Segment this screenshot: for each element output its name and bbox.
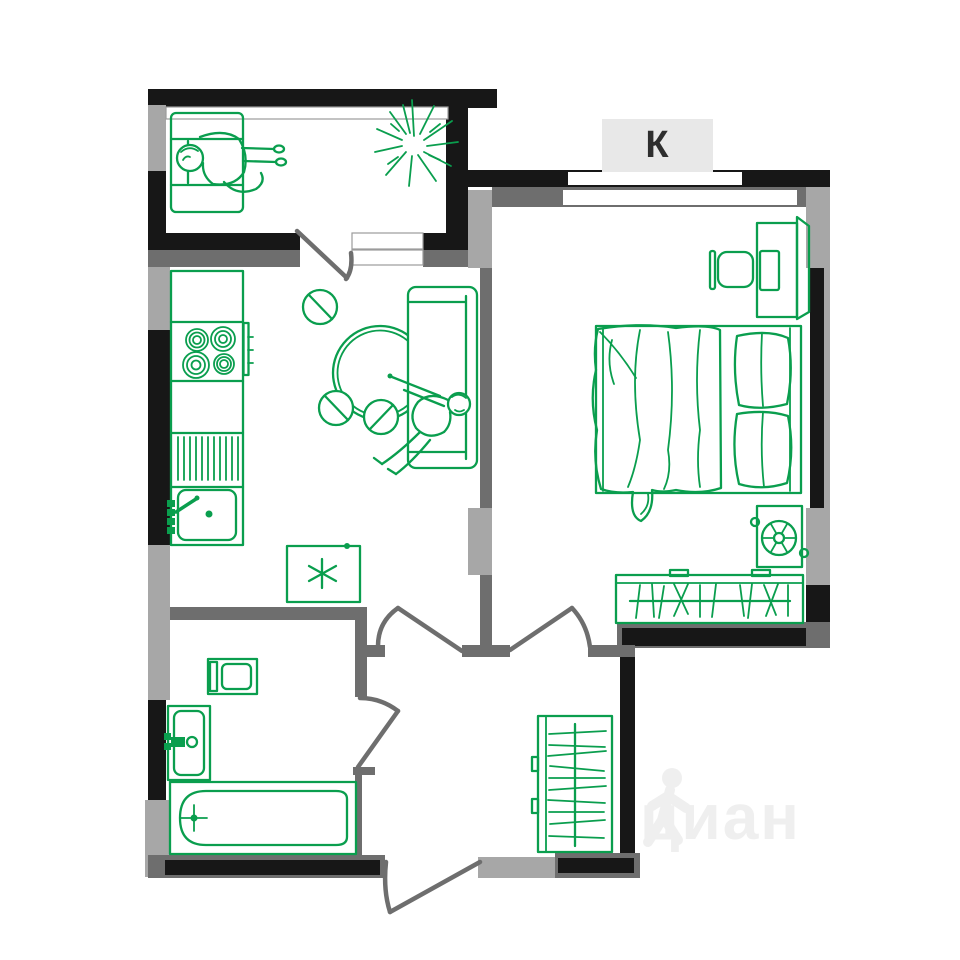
window — [352, 233, 423, 249]
wall — [148, 545, 170, 607]
wall — [355, 607, 367, 697]
wall — [148, 105, 166, 171]
monitor-icon — [760, 251, 779, 290]
window — [563, 190, 797, 205]
window — [352, 250, 423, 265]
floor-plan: К циан — [0, 0, 960, 960]
wall — [148, 607, 363, 620]
wall — [148, 607, 170, 700]
room-label-kitchen: К — [602, 119, 713, 172]
wall — [622, 628, 806, 646]
wall — [468, 508, 492, 575]
fan-unit-icon — [751, 506, 808, 567]
wall — [148, 700, 166, 800]
watermark: циан — [640, 762, 880, 872]
office-chair-icon — [710, 251, 753, 289]
washing-machine-icon — [208, 659, 257, 694]
entry-door — [385, 862, 480, 912]
wall — [480, 575, 492, 647]
walls — [145, 89, 830, 878]
wall — [148, 233, 300, 250]
bathtub-icon — [170, 782, 356, 854]
wall — [824, 268, 830, 508]
watermark-person-icon — [640, 762, 698, 852]
wall — [810, 268, 824, 508]
wall — [148, 250, 300, 267]
wall — [806, 508, 830, 585]
wall — [423, 250, 468, 267]
desk-icon — [757, 217, 809, 319]
wardrobe-hangers-icon — [616, 570, 803, 623]
wall — [148, 330, 170, 545]
wall — [480, 268, 492, 508]
bathroom-sink-icon — [164, 706, 210, 780]
double-bed-icon — [593, 325, 801, 521]
hall-wardrobe-hangers-icon — [532, 716, 612, 852]
wall — [165, 860, 380, 875]
wall — [620, 648, 635, 857]
bedroom-door — [510, 608, 590, 650]
pillows-icon — [734, 333, 791, 487]
wall — [588, 645, 635, 657]
kitchen-counter-icon — [171, 271, 243, 545]
wall — [558, 858, 634, 873]
wall — [423, 233, 468, 250]
wall — [148, 171, 166, 233]
window — [568, 172, 742, 185]
bathroom-door — [358, 698, 398, 767]
blanket-icon — [593, 325, 721, 521]
kitchen-door — [378, 608, 462, 651]
armchair-with-person-icon — [171, 113, 286, 212]
wall — [478, 857, 560, 878]
fridge-asterisk-icon — [287, 543, 360, 602]
balcony-door — [297, 231, 351, 279]
oven-handle — [244, 323, 249, 375]
wall — [468, 190, 492, 268]
wall — [462, 645, 510, 657]
wall — [148, 89, 497, 108]
wall — [148, 267, 170, 330]
